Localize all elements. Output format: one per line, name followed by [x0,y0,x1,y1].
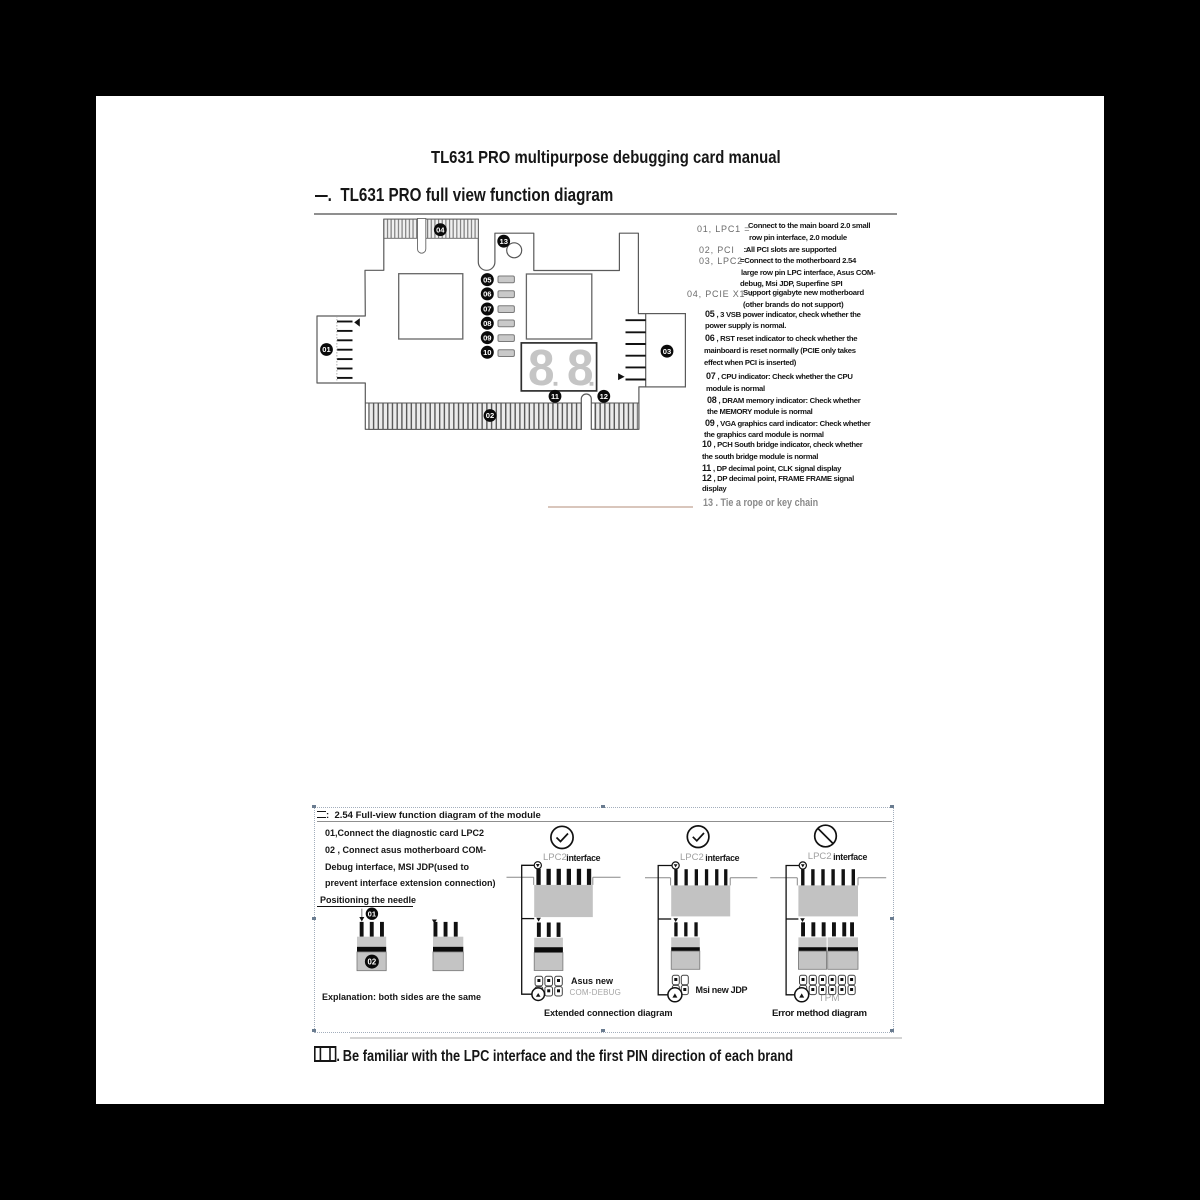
svg-text:10: 10 [483,348,491,357]
svg-text:05: 05 [483,275,492,284]
svg-text:8: 8 [567,339,594,396]
svg-text:01: 01 [368,909,377,918]
svg-text:01: 01 [322,345,331,354]
svg-text:04: 04 [436,225,445,234]
svg-text:06: 06 [483,290,491,299]
svg-text:02: 02 [486,411,494,420]
svg-text:02: 02 [368,957,377,966]
svg-text:07: 07 [483,305,491,314]
svg-text:8: 8 [528,339,555,396]
svg-text:12: 12 [600,392,608,401]
svg-text:11: 11 [551,392,560,401]
svg-text:09: 09 [483,333,491,342]
svg-text:08: 08 [483,319,491,328]
svg-text:13: 13 [499,237,507,246]
svg-text:03: 03 [663,347,671,356]
